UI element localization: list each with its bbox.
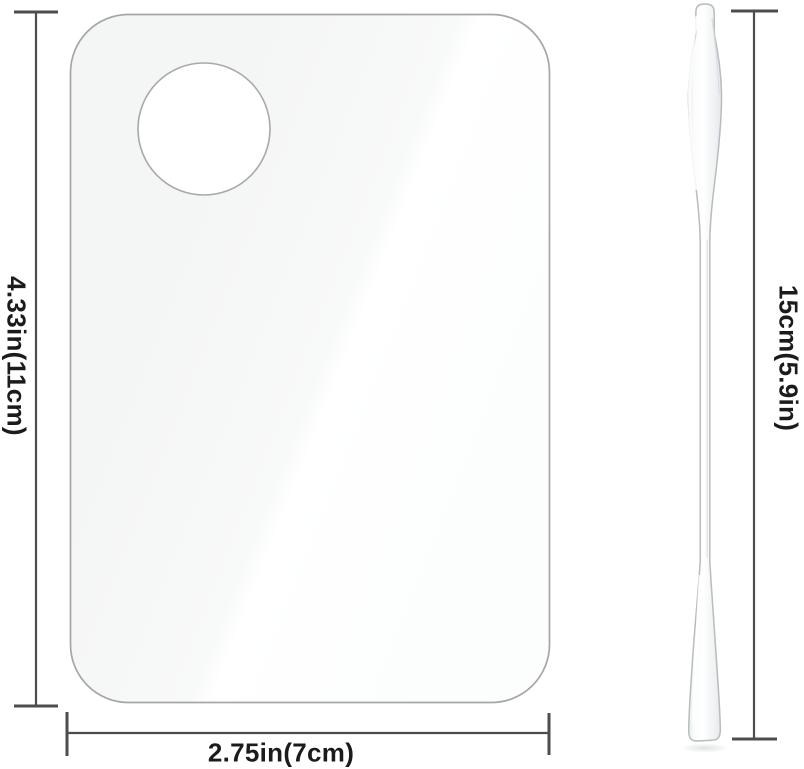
palette-width-label: 2.75in(7cm) <box>208 738 354 769</box>
spatula-length-dimension-line <box>731 11 778 739</box>
spatula-length-label: 15cm(5.9in) <box>773 285 804 431</box>
spatula-shadow <box>679 743 731 753</box>
product-dimension-diagram: 4.33in(11cm) 2.75in(7cm) 15cm(5.9in) <box>0 0 804 769</box>
mixing-spatula <box>688 4 721 741</box>
diagram-canvas <box>0 0 804 769</box>
makeup-mixing-palette <box>71 15 550 703</box>
palette-height-label: 4.33in(11cm) <box>1 276 32 436</box>
palette-thumb-hole <box>138 63 270 195</box>
spatula-body <box>688 4 721 741</box>
